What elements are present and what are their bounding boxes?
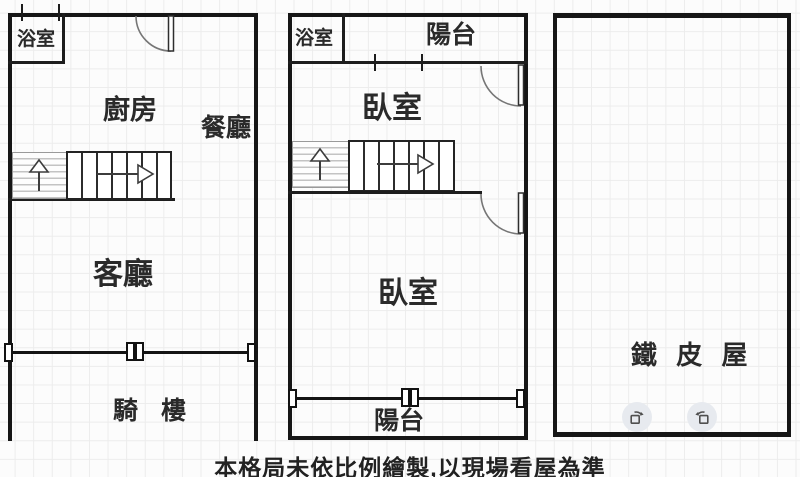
room-label-metal-house: 鐵 皮 屋 [631, 342, 753, 368]
window-jamb [4, 343, 13, 362]
door-swing-arc [481, 194, 521, 234]
window-tick [58, 4, 60, 21]
window-jamb [410, 388, 419, 407]
window-jamb [247, 343, 256, 362]
door-swing-arc [136, 16, 171, 51]
wall-segment [553, 13, 791, 18]
stairs-treads [66, 151, 172, 200]
wall-segment [8, 13, 258, 17]
room-label-bedroom-upper: 臥室 [362, 94, 422, 124]
wall-segment [288, 61, 528, 64]
room-label-balcony-top: 陽台 [426, 23, 476, 48]
wall-segment [787, 13, 791, 437]
wall-segment [553, 432, 791, 437]
disclaimer-caption: 本格局未依比例繪製,以現場看屋為準 [20, 449, 800, 477]
wall-segment [342, 13, 345, 64]
wall-segment [288, 13, 528, 17]
wall-segment [288, 436, 528, 440]
room-label-living: 客廳 [93, 260, 153, 290]
wall-segment [288, 191, 482, 194]
stairs-up-landing [292, 141, 349, 188]
wall-segment [524, 13, 528, 440]
window-jamb [401, 388, 410, 407]
wall-segment [8, 13, 12, 441]
wall-segment [62, 13, 65, 64]
window-tick [21, 4, 23, 21]
rotate-cw-button[interactable] [622, 402, 652, 432]
room-label-bathroom: 浴室 [17, 30, 55, 49]
wall-segment [288, 13, 292, 440]
door-leaf [519, 65, 524, 105]
room-label-arcade: 騎 樓 [113, 399, 194, 424]
door-leaf [519, 193, 524, 233]
rotate-cw-icon [627, 407, 647, 427]
window-jamb [288, 389, 297, 408]
window-tick [421, 54, 423, 71]
window-jamb [126, 342, 135, 361]
room-label-kitchen: 廚房 [103, 97, 157, 124]
room-label-bedroom-lower: 臥室 [378, 279, 438, 309]
rotate-ccw-button[interactable] [687, 402, 717, 432]
stairs-up-landing [12, 152, 67, 199]
door-leaf [169, 16, 174, 51]
rotate-ccw-icon [692, 407, 712, 427]
stairs-treads [348, 140, 455, 192]
wall-segment [8, 61, 65, 64]
window-jamb [516, 389, 525, 408]
room-label-dining: 餐廳 [201, 116, 251, 141]
room-label-bathroom: 浴室 [295, 29, 333, 48]
window-jamb [135, 342, 144, 361]
door-swing-arc [481, 66, 521, 106]
wall-segment [553, 13, 557, 437]
wall-segment [254, 13, 258, 441]
room-label-balcony-bottom: 陽台 [374, 409, 424, 434]
window-tick [374, 54, 376, 71]
floor-plan-canvas: 浴室 廚房 餐廳 客廳 騎 樓 浴室 陽台 臥室 臥室 陽台 [0, 0, 800, 477]
